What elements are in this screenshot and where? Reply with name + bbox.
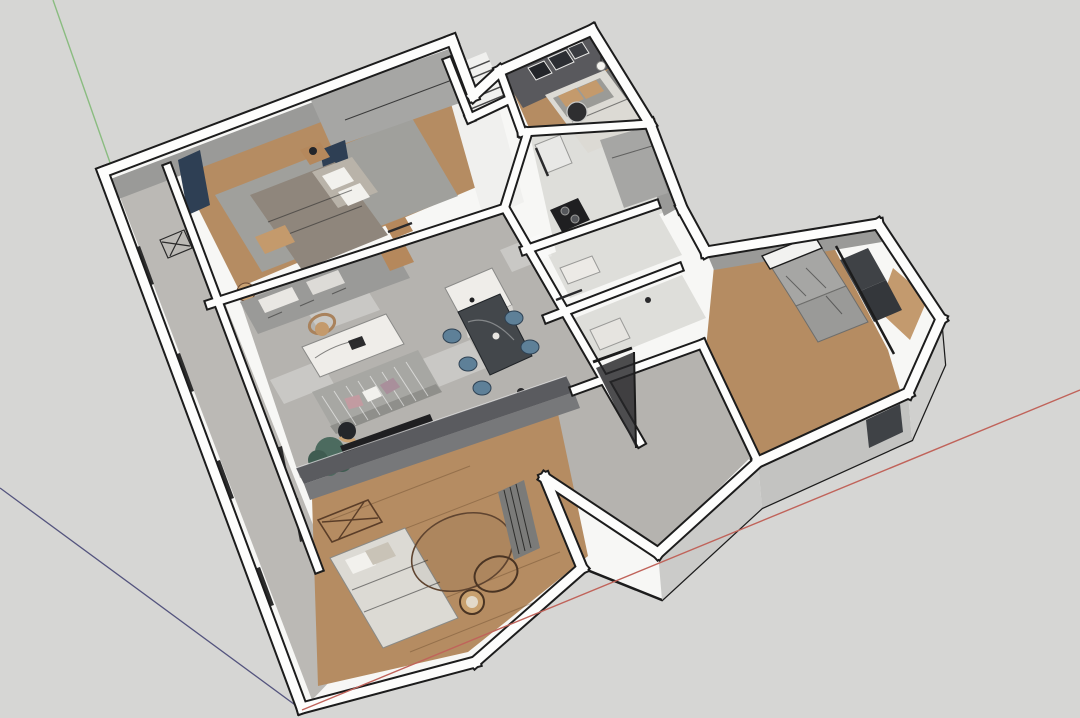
round-side-table	[567, 102, 587, 122]
table-lamp-left	[309, 147, 317, 155]
dining-chair	[473, 381, 491, 395]
floor-drain	[645, 297, 651, 303]
stove-burner	[561, 207, 569, 215]
pendant-lamp	[597, 62, 606, 71]
table-bowl	[493, 333, 500, 340]
floorplan-canvas[interactable]	[0, 0, 1080, 718]
armchair-cushion	[315, 322, 329, 336]
dining-chair	[505, 311, 523, 325]
island-faucet	[470, 298, 475, 303]
rattan-cushion	[466, 596, 478, 608]
dining-chair	[459, 357, 477, 371]
stove-burner	[571, 215, 579, 223]
viewport-3d[interactable]	[0, 0, 1080, 718]
dining-chair	[443, 329, 461, 343]
dining-chair	[521, 340, 539, 354]
